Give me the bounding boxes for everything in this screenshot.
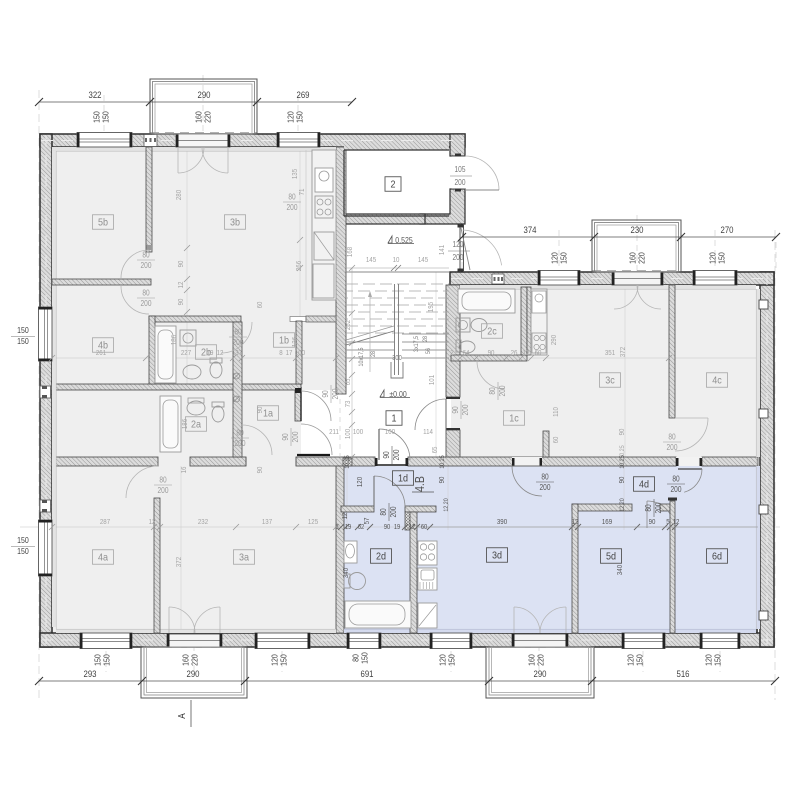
svg-text:200: 200 <box>330 389 340 400</box>
svg-text:5d: 5d <box>606 551 616 563</box>
svg-text:120: 120 <box>357 477 365 487</box>
svg-text:200: 200 <box>540 482 551 492</box>
svg-text:290: 290 <box>187 668 200 679</box>
svg-text:1: 1 <box>391 413 396 425</box>
svg-text:290: 290 <box>198 89 211 100</box>
svg-text:19: 19 <box>394 524 401 532</box>
svg-text:19: 19 <box>207 350 214 358</box>
svg-text:169: 169 <box>602 519 612 527</box>
svg-text:211: 211 <box>329 429 339 437</box>
svg-text:90: 90 <box>320 390 330 397</box>
svg-text:90: 90 <box>619 476 627 483</box>
svg-text:200: 200 <box>233 337 244 347</box>
svg-text:65: 65 <box>345 378 353 385</box>
svg-text:90: 90 <box>619 428 627 435</box>
svg-text:137: 137 <box>232 350 242 358</box>
svg-text:200: 200 <box>671 484 682 494</box>
svg-text:3x17,5: 3x17,5 <box>414 335 421 352</box>
svg-text:200: 200 <box>460 405 470 416</box>
svg-text:227: 227 <box>181 350 191 358</box>
svg-text:90: 90 <box>280 433 290 440</box>
svg-text:105: 105 <box>455 164 466 174</box>
svg-text:12: 12 <box>217 350 224 358</box>
svg-text:10: 10 <box>393 257 400 265</box>
svg-text:270: 270 <box>721 224 734 235</box>
svg-text:12: 12 <box>572 519 579 527</box>
svg-text:150: 150 <box>713 654 723 666</box>
svg-text:200: 200 <box>287 202 298 212</box>
svg-text:150: 150 <box>17 336 29 346</box>
svg-text:64: 64 <box>463 350 470 358</box>
svg-text:168: 168 <box>347 247 355 257</box>
svg-text:220: 220 <box>536 654 546 666</box>
svg-text:2d: 2d <box>376 551 386 563</box>
svg-text:287: 287 <box>100 519 110 527</box>
svg-text:12: 12 <box>523 350 530 358</box>
svg-text:200: 200 <box>667 442 678 452</box>
svg-text:12: 12 <box>149 519 156 527</box>
svg-text:200: 200 <box>141 298 152 308</box>
svg-text:266: 266 <box>296 261 304 271</box>
svg-text:90: 90 <box>384 524 391 532</box>
svg-text:8: 8 <box>279 350 283 358</box>
svg-text:100: 100 <box>353 429 363 437</box>
svg-text:1d: 1d <box>398 473 408 485</box>
svg-text:150: 150 <box>447 654 457 666</box>
svg-text:141: 141 <box>439 245 447 255</box>
svg-text:80: 80 <box>378 508 388 515</box>
svg-text:261: 261 <box>96 350 106 358</box>
svg-text:12,20: 12,20 <box>620 498 627 512</box>
svg-text:90: 90 <box>257 406 265 413</box>
svg-text:290: 290 <box>534 668 547 679</box>
svg-text:293: 293 <box>84 668 97 679</box>
svg-text:100: 100 <box>385 429 395 437</box>
svg-text:220: 220 <box>203 111 213 123</box>
svg-text:12: 12 <box>178 281 186 288</box>
svg-text:60: 60 <box>553 436 561 443</box>
svg-text:60: 60 <box>421 524 428 532</box>
svg-text:80: 80 <box>234 327 241 337</box>
svg-text:150: 150 <box>279 654 289 666</box>
svg-text:12,20: 12,20 <box>444 498 451 512</box>
svg-text:80: 80 <box>288 192 295 202</box>
svg-text:90: 90 <box>257 466 265 473</box>
svg-text:28: 28 <box>423 335 430 342</box>
svg-text:300: 300 <box>392 355 402 363</box>
svg-text:71: 71 <box>299 188 307 195</box>
svg-text:145: 145 <box>418 257 428 265</box>
svg-text:12: 12 <box>409 524 416 532</box>
svg-text:60: 60 <box>257 301 265 308</box>
svg-text:80: 80 <box>159 475 166 485</box>
svg-text:5b: 5b <box>98 217 108 229</box>
svg-text:80: 80 <box>236 428 243 438</box>
svg-text:80: 80 <box>487 387 497 394</box>
svg-text:200: 200 <box>158 485 169 495</box>
svg-text:322: 322 <box>89 89 102 100</box>
svg-text:100: 100 <box>345 429 353 439</box>
svg-text:19: 19 <box>345 524 352 532</box>
svg-text:4d: 4d <box>639 479 649 491</box>
svg-text:195: 195 <box>428 302 436 312</box>
svg-text:150: 150 <box>17 325 29 335</box>
svg-text:150: 150 <box>559 252 569 264</box>
svg-text:200: 200 <box>141 260 152 270</box>
svg-text:28: 28 <box>371 350 378 357</box>
svg-text:150: 150 <box>17 546 29 556</box>
svg-text:372: 372 <box>620 347 628 357</box>
svg-text:A: A <box>176 712 187 718</box>
svg-text:3c: 3c <box>605 375 615 387</box>
svg-text:2a: 2a <box>191 419 202 431</box>
svg-text:65: 65 <box>432 446 440 453</box>
svg-text:80: 80 <box>541 472 548 482</box>
svg-text:220: 220 <box>190 654 200 666</box>
svg-text:200: 200 <box>497 386 507 397</box>
svg-text:150: 150 <box>717 252 727 264</box>
svg-text:150: 150 <box>102 654 112 666</box>
svg-text:200: 200 <box>235 438 246 448</box>
svg-text:374: 374 <box>524 224 537 235</box>
svg-text:6d: 6d <box>712 551 722 563</box>
svg-text:200: 200 <box>388 507 398 518</box>
svg-text:126: 126 <box>292 337 300 347</box>
svg-text:114: 114 <box>423 429 433 437</box>
svg-text:186: 186 <box>182 419 190 429</box>
svg-text:4.B: 4.B <box>412 476 427 492</box>
svg-text:120: 120 <box>453 239 464 249</box>
svg-text:2: 2 <box>450 350 454 358</box>
svg-text:200: 200 <box>290 432 300 443</box>
svg-text:12: 12 <box>673 519 680 527</box>
svg-text:516: 516 <box>677 668 690 679</box>
svg-text:90: 90 <box>450 406 460 413</box>
svg-text:280: 280 <box>176 190 184 200</box>
svg-text:10,25: 10,25 <box>620 455 627 469</box>
svg-text:1b: 1b <box>279 335 289 347</box>
svg-text:80: 80 <box>672 474 679 484</box>
svg-text:2c: 2c <box>487 326 497 338</box>
svg-text:3a: 3a <box>239 552 250 564</box>
svg-text:3b: 3b <box>230 217 240 229</box>
svg-text:57: 57 <box>364 517 372 524</box>
svg-text:90: 90 <box>439 476 447 483</box>
svg-text:372: 372 <box>176 557 184 567</box>
svg-text:200: 200 <box>455 177 466 187</box>
svg-text:340: 340 <box>343 568 351 578</box>
svg-text:4a: 4a <box>98 552 109 564</box>
svg-text:230: 230 <box>631 224 644 235</box>
svg-text:135: 135 <box>292 169 300 179</box>
svg-text:390: 390 <box>497 519 507 527</box>
svg-text:101: 101 <box>429 375 437 385</box>
svg-text:252: 252 <box>345 320 353 330</box>
svg-text:80: 80 <box>142 250 149 260</box>
svg-text:90: 90 <box>178 260 186 267</box>
svg-text:150: 150 <box>295 111 305 123</box>
svg-text:200: 200 <box>653 503 663 514</box>
svg-text:62: 62 <box>358 524 365 532</box>
svg-text:5: 5 <box>335 524 339 532</box>
svg-text:186: 186 <box>171 335 179 345</box>
svg-text:90: 90 <box>178 298 186 305</box>
svg-text:200: 200 <box>453 252 464 262</box>
svg-text:10,25: 10,25 <box>345 455 352 469</box>
svg-text:3d: 3d <box>492 550 502 562</box>
svg-text:232: 232 <box>198 519 208 527</box>
svg-text:137: 137 <box>262 519 272 527</box>
svg-text:1a: 1a <box>263 408 274 420</box>
svg-text:351: 351 <box>605 350 615 358</box>
svg-text:90: 90 <box>488 350 495 358</box>
svg-text:12: 12 <box>342 512 350 519</box>
svg-text:26: 26 <box>511 350 518 358</box>
svg-text:90: 90 <box>649 519 656 527</box>
svg-text:269: 269 <box>297 89 310 100</box>
svg-text:220: 220 <box>637 252 647 264</box>
svg-text:2: 2 <box>390 179 395 191</box>
svg-text:340: 340 <box>617 565 625 575</box>
svg-text:80: 80 <box>142 288 149 298</box>
svg-text:10,25: 10,25 <box>440 455 447 469</box>
svg-text:150: 150 <box>17 535 29 545</box>
svg-text:150: 150 <box>101 111 111 123</box>
svg-text:145: 145 <box>366 257 376 265</box>
svg-text:16: 16 <box>181 466 189 473</box>
svg-text:125: 125 <box>308 519 318 527</box>
svg-text:691: 691 <box>361 668 374 679</box>
svg-text:100: 100 <box>295 350 305 358</box>
svg-text:110: 110 <box>553 407 561 417</box>
svg-text:4c: 4c <box>712 375 722 387</box>
svg-text:56: 56 <box>426 347 433 354</box>
svg-text:80: 80 <box>643 504 653 511</box>
svg-text:290: 290 <box>551 335 559 345</box>
svg-text:150: 150 <box>635 654 645 666</box>
svg-text:17: 17 <box>286 350 293 358</box>
svg-text:80: 80 <box>668 432 675 442</box>
svg-text:200: 200 <box>391 450 401 461</box>
svg-text:150: 150 <box>360 652 370 664</box>
svg-text:90: 90 <box>381 451 391 458</box>
svg-text:10x17,5: 10x17,5 <box>359 347 366 367</box>
svg-text:1c: 1c <box>509 413 519 425</box>
svg-text:60: 60 <box>535 350 542 358</box>
svg-text:73: 73 <box>345 400 353 407</box>
